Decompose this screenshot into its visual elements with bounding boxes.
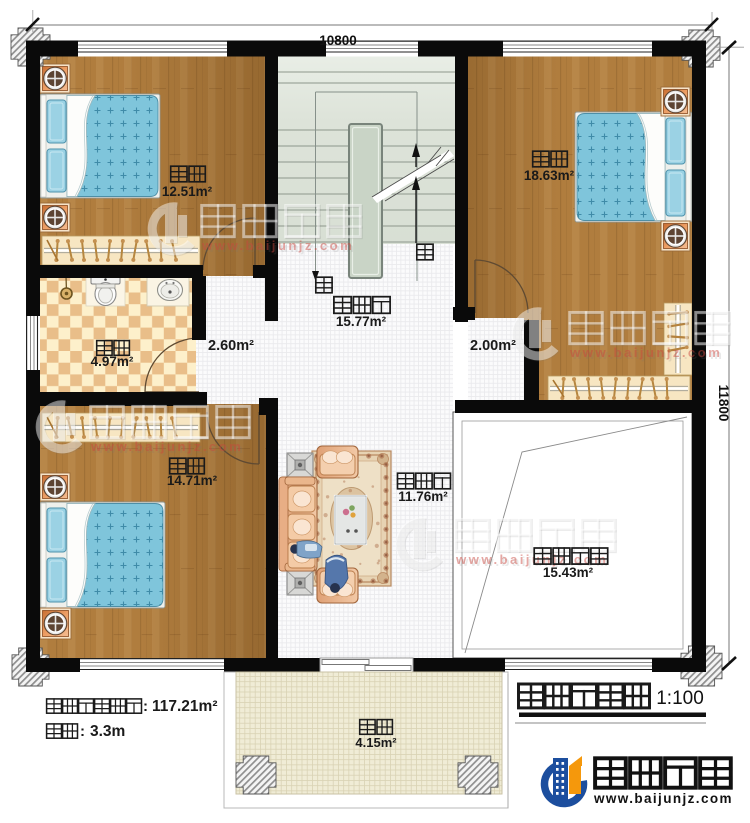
svg-text:11.76m²: 11.76m²: [398, 489, 448, 504]
svg-text:18.63m²: 18.63m²: [524, 168, 575, 183]
svg-text:www.baijunjz.com: www.baijunjz.com: [593, 791, 733, 806]
svg-text:www.baijunjz.com: www.baijunjz.com: [90, 439, 243, 454]
svg-text:12.51m²: 12.51m²: [162, 184, 213, 199]
svg-text:3.3m: 3.3m: [90, 723, 125, 740]
svg-text:117.21m²: 117.21m²: [152, 698, 218, 715]
svg-text:14.71m²: 14.71m²: [167, 473, 218, 488]
svg-text:4.15m²: 4.15m²: [355, 735, 397, 750]
svg-text:2.00m²: 2.00m²: [470, 338, 516, 354]
svg-text::: :: [80, 723, 85, 740]
svg-text:15.43m²: 15.43m²: [543, 565, 594, 580]
svg-text:www.baijunjz.com: www.baijunjz.com: [201, 238, 354, 253]
svg-text:15.77m²: 15.77m²: [336, 314, 387, 329]
svg-text:4.97m²: 4.97m²: [91, 354, 134, 369]
svg-text:1:100: 1:100: [656, 688, 704, 709]
svg-text:10800: 10800: [319, 33, 357, 48]
svg-text::: :: [143, 698, 148, 715]
svg-text:11800: 11800: [716, 385, 731, 422]
svg-text:www.baijunjz.com: www.baijunjz.com: [569, 345, 722, 360]
svg-text:2.60m²: 2.60m²: [208, 338, 254, 354]
